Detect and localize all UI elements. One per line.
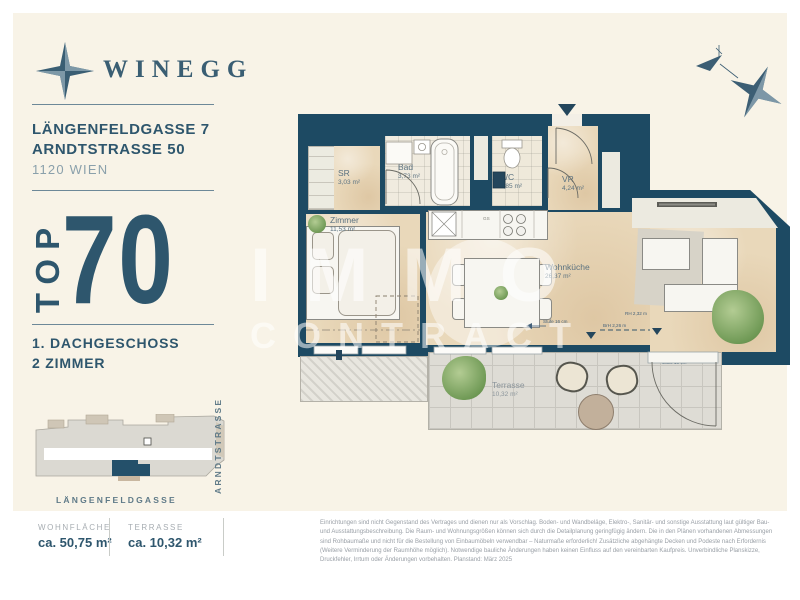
divider [32, 324, 214, 325]
footer-divider [109, 518, 110, 556]
summary-label: WOHNFLÄCHE [38, 523, 112, 532]
top-number: 70 [62, 197, 174, 323]
summary-terrasse: TERRASSE ca. 10,32 m² [128, 523, 202, 550]
summary-label: TERRASSE [128, 523, 202, 532]
legal-disclaimer: Einrichtungen sind nicht Gegenstand des … [320, 519, 778, 565]
unit-floor: 1. DACHGESCHOSS [32, 335, 179, 351]
summary-value: ca. 10,32 m² [128, 535, 202, 550]
summary-value: ca. 50,75 m² [38, 535, 112, 550]
address-city: 1120 WIEN [32, 162, 108, 177]
address-line1: LÄNGENFELDGASSE 7 [32, 121, 210, 138]
winegg-star-icon [36, 42, 94, 100]
address-line2: ARNDTSTRASSE 50 [32, 141, 185, 158]
flyer-page: WINEGG LÄNGENFELDGASSE 7 ARNDTSTRASSE 50… [0, 0, 800, 600]
plan-symbols-overlay [290, 100, 795, 445]
unit-rooms: 2 ZIMMER [32, 355, 105, 371]
footer-divider [223, 518, 224, 556]
site-plan-map [28, 414, 230, 492]
summary-wohnflaeche: WOHNFLÄCHE ca. 50,75 m² [38, 523, 112, 550]
brand-logo-text: WINEGG [103, 56, 253, 84]
street-label-laengenfeldgasse: LÄNGENFELDGASSE [56, 495, 177, 505]
street-label-arndtstrasse: ARNDTSTRASSE [213, 414, 223, 494]
divider [32, 104, 214, 105]
